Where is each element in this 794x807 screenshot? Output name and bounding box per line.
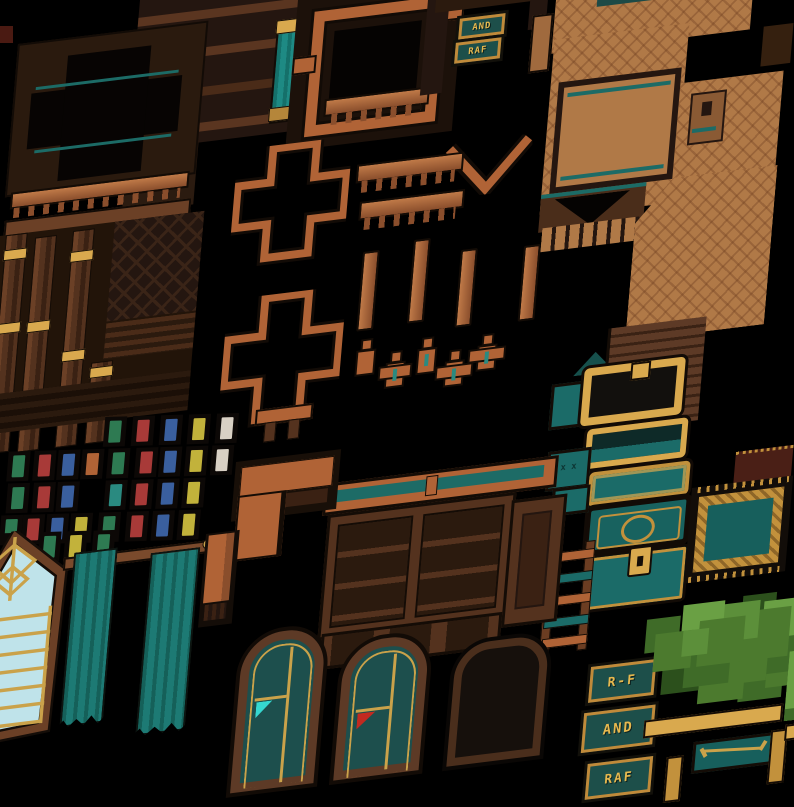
rug-field	[703, 498, 773, 562]
book-tile	[187, 414, 212, 445]
hedge-foliage-2	[784, 646, 794, 721]
hedge-foliage	[681, 628, 709, 657]
door-teal-1	[230, 626, 327, 794]
book-tile	[159, 415, 184, 446]
totem-figures	[352, 315, 513, 406]
banner-face	[203, 532, 235, 603]
panel-gold-deco	[759, 740, 768, 751]
book-tile	[31, 482, 56, 513]
chest-lock	[627, 545, 653, 578]
sign-post: AND RAF	[429, 0, 561, 86]
planter-rail-2	[784, 719, 794, 741]
panel-gold-deco	[703, 746, 762, 752]
book-tile	[80, 449, 105, 480]
shelf-top-divider	[425, 475, 439, 496]
totem-figure	[435, 349, 472, 395]
door-teal-2	[333, 633, 430, 781]
small-table	[253, 403, 313, 444]
sign-label: RAF	[468, 44, 488, 56]
pillar-bar	[407, 238, 431, 324]
pillar-bar	[356, 250, 380, 332]
column-capital	[61, 349, 86, 363]
book-tile	[106, 448, 131, 479]
teal-accent	[692, 126, 716, 133]
column-capital	[26, 319, 51, 333]
orange-banner	[198, 530, 240, 628]
column-capital	[69, 249, 94, 263]
small-pillar	[687, 89, 727, 145]
pillar-bar	[454, 248, 477, 328]
copper-corner-piece	[232, 490, 286, 562]
frame-step	[292, 55, 317, 76]
table-leg	[263, 421, 277, 442]
column-capital	[3, 247, 28, 261]
dentil-rails	[341, 143, 469, 242]
totem-figure	[378, 351, 411, 395]
book-tile	[215, 413, 240, 444]
book-tile	[131, 415, 156, 446]
chest-open-dark	[580, 356, 686, 426]
cross-trim-1	[227, 136, 353, 276]
door-gold-trim	[243, 640, 315, 789]
book-tile	[55, 481, 80, 512]
teal-accent	[567, 80, 671, 97]
lattice-panel	[107, 211, 205, 322]
teal-accent	[560, 164, 664, 181]
book-tile	[181, 478, 206, 509]
book-tile	[129, 479, 154, 510]
teal-rug	[684, 475, 794, 587]
red-speck-tile	[0, 26, 13, 43]
tileset-canvas: { "app": { "type": "pixel-art interior t…	[0, 0, 794, 794]
book-tile	[210, 445, 235, 476]
banner-tail	[203, 602, 226, 621]
chest-front-lock	[584, 543, 690, 613]
sign-raf-top: RAF	[454, 37, 501, 64]
totem-figure	[356, 340, 375, 376]
pillar-window	[701, 101, 712, 116]
book-tile	[6, 451, 31, 482]
totem-figure	[468, 334, 505, 378]
book-tile	[103, 416, 128, 447]
column-capital	[89, 365, 114, 379]
book-tile	[103, 480, 128, 511]
planter-leg	[663, 755, 684, 803]
curtain-set	[49, 515, 217, 733]
sign-and-top: AND	[458, 13, 505, 40]
door-dark	[446, 634, 550, 767]
keyhole	[637, 556, 644, 567]
sign-label: RAF	[604, 769, 635, 788]
sign-label: AND	[602, 719, 634, 739]
doors-row	[230, 591, 563, 794]
table-leg	[287, 418, 301, 439]
planter-hedge	[630, 591, 794, 793]
book-tile	[5, 483, 30, 514]
curtain	[59, 547, 118, 728]
book-tile	[155, 478, 180, 509]
book-tile	[134, 447, 159, 478]
column-capital	[0, 321, 21, 335]
curtain	[135, 547, 200, 736]
book-tile	[56, 450, 81, 481]
totem-figure	[417, 338, 436, 374]
framed-floor-tile	[549, 67, 682, 194]
chest-latch	[630, 361, 651, 381]
book-tile	[32, 450, 57, 481]
book-tile	[158, 446, 183, 477]
book-tile	[184, 446, 209, 477]
dark-corner-block	[760, 23, 793, 66]
cross-hole-v	[57, 45, 151, 181]
sign-label: AND	[472, 20, 492, 32]
sign-label: R-F	[607, 672, 638, 691]
